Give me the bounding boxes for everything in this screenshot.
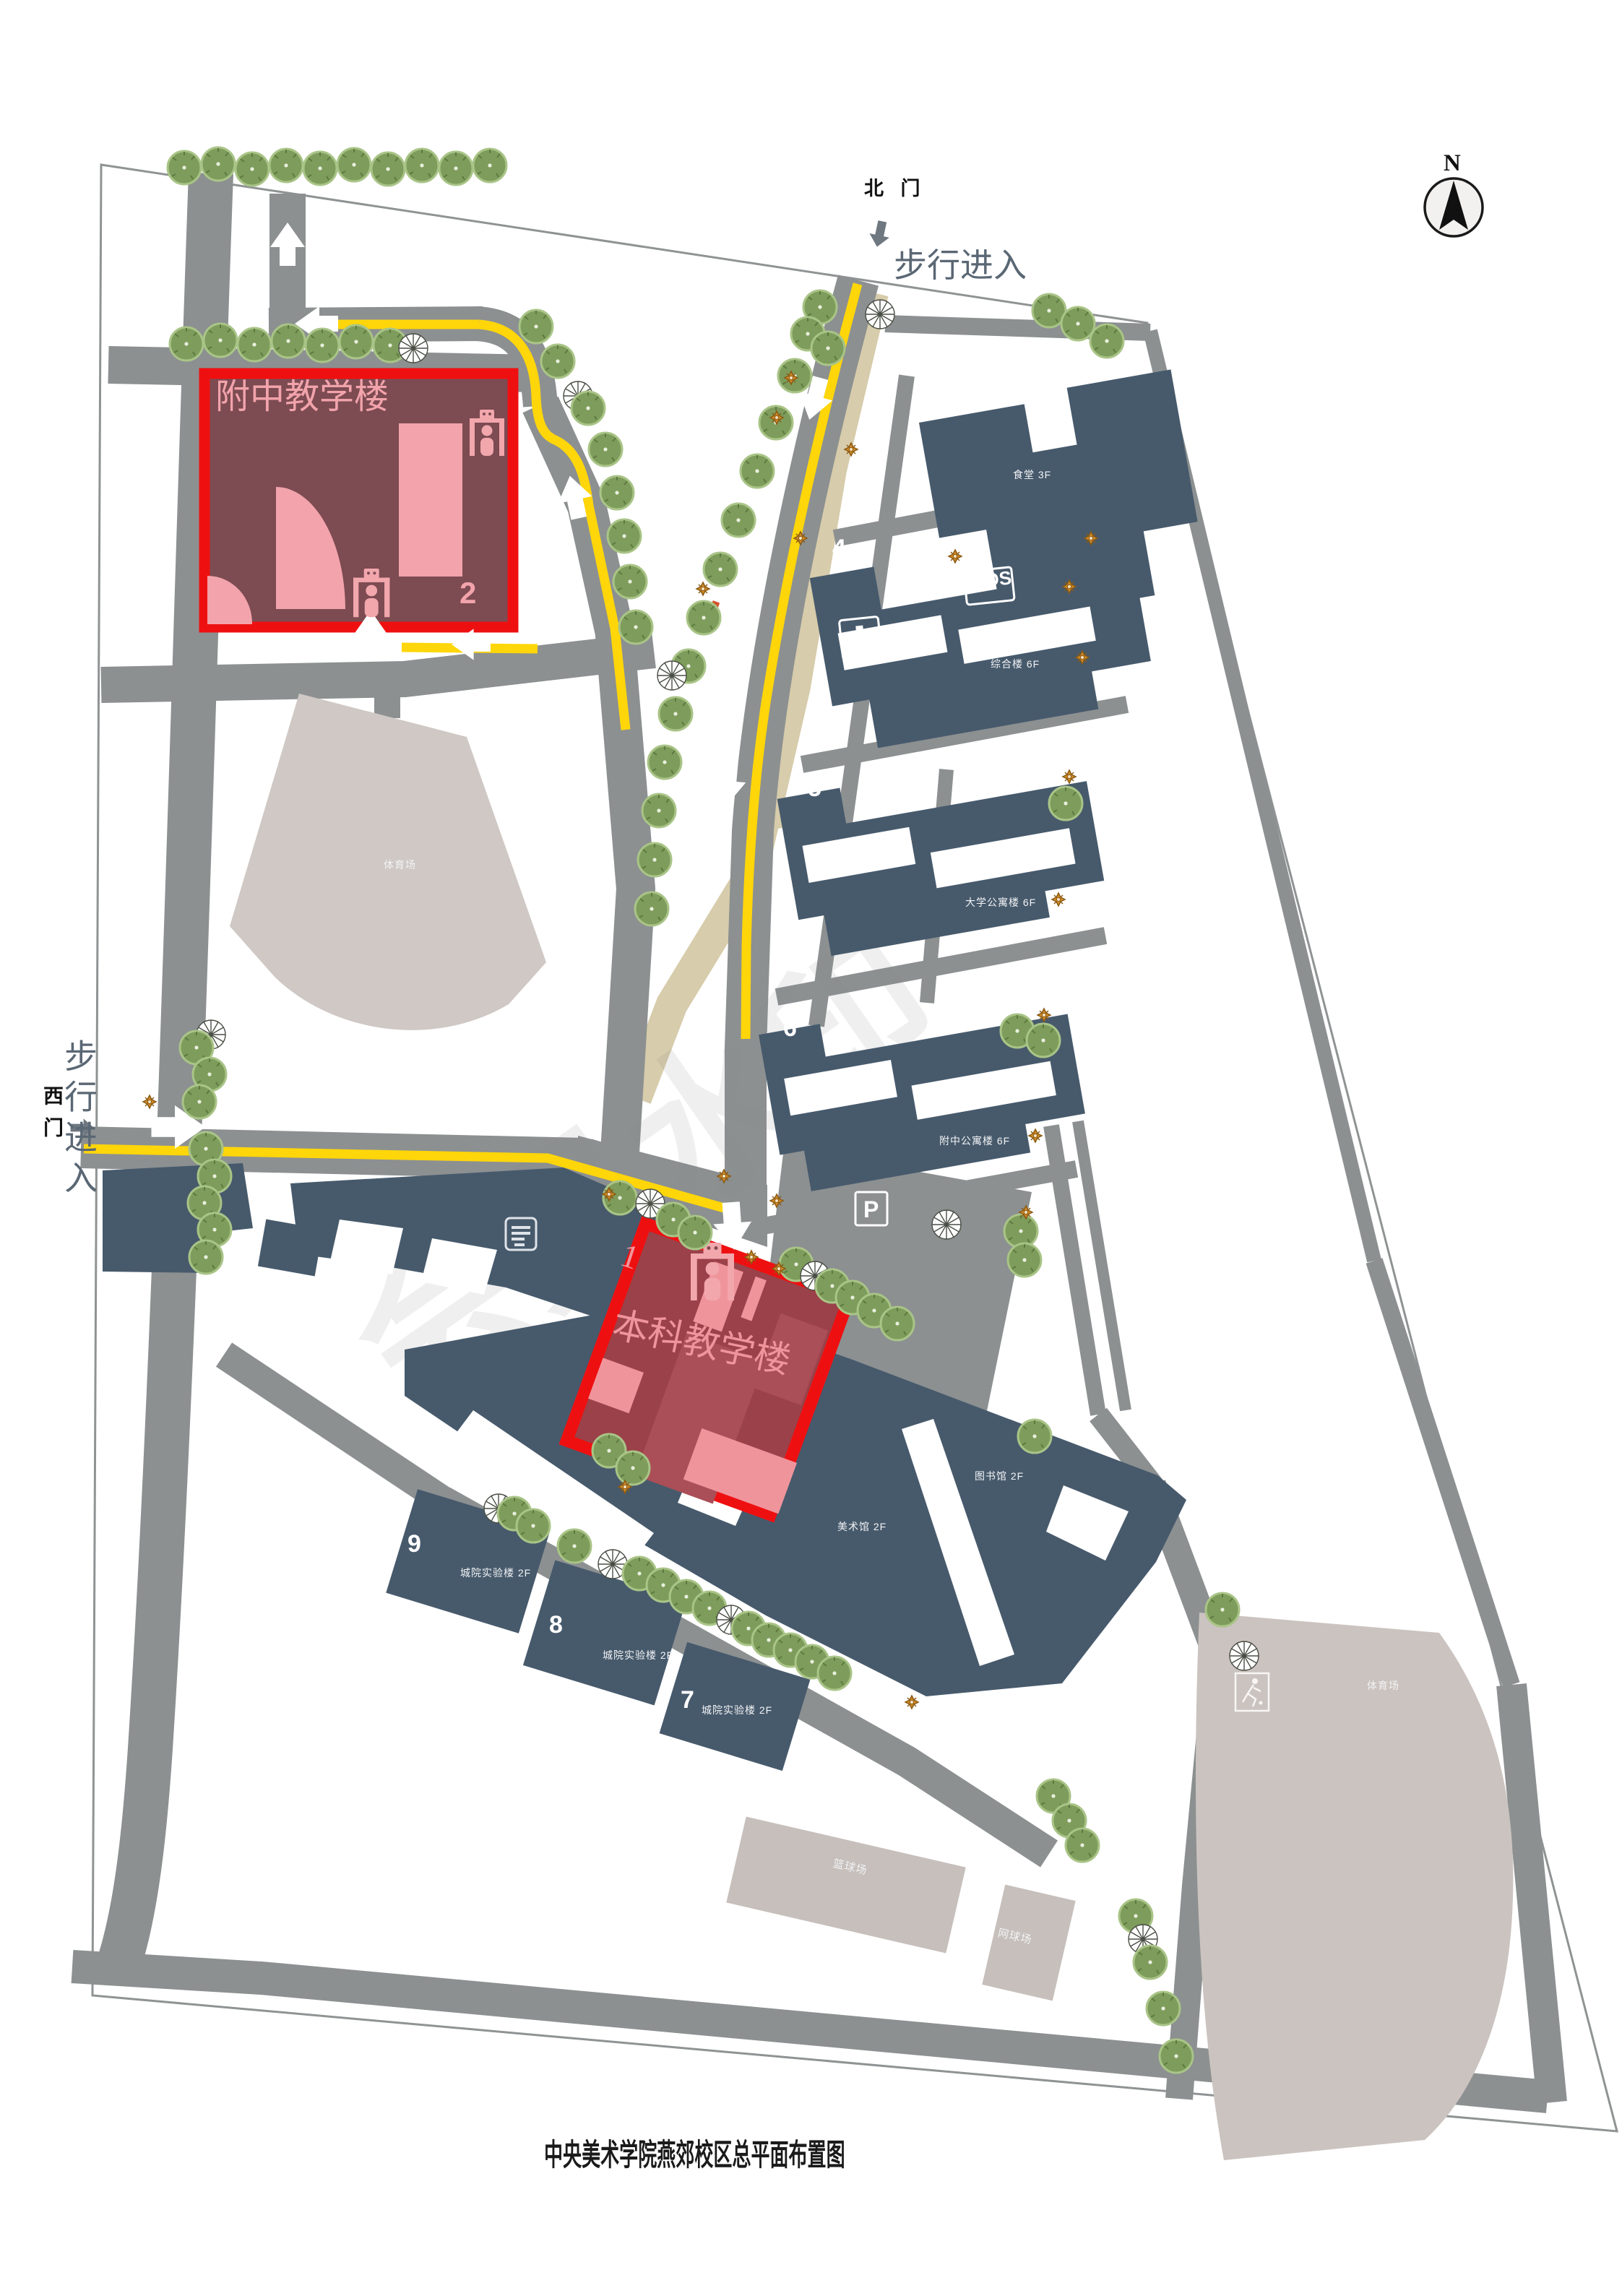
sos-badge-text: SOS — [971, 568, 1012, 591]
compass-label: N — [1444, 152, 1461, 176]
page-title: 中央美术学院燕郊校区总平面布置图 — [544, 2140, 845, 2170]
building-7-label: 城院实验楼 2F — [702, 1705, 772, 1715]
building-9-label: 城院实验楼 2F — [460, 1568, 531, 1578]
north-gate-arrow-icon — [867, 219, 892, 249]
west-gate-label: 西门 — [42, 1085, 62, 1149]
museum-label: 美术馆 2F — [837, 1522, 887, 1532]
building-6-label: 附中公寓楼 6F — [939, 1136, 1010, 1146]
building-4-number: 4 — [832, 536, 846, 561]
building-2-title: 附中教学楼 — [215, 380, 389, 415]
building-4-label: 综合楼 6F — [991, 659, 1040, 669]
building-3-label: 食堂 3F — [1013, 470, 1051, 480]
building-5-number: 5 — [808, 776, 821, 800]
stadium-nw-label: 体育场 — [384, 860, 416, 870]
campus-map: 会员水印 — [0, 0, 1622, 2296]
building-6-number: 6 — [783, 1016, 797, 1040]
building-8-number: 8 — [549, 1613, 563, 1637]
west-gate-note: 步行进入 — [62, 1039, 95, 1201]
library-label: 图书馆 2F — [975, 1471, 1024, 1481]
building-3-number: 3 — [933, 389, 947, 413]
building-5-label: 大学公寓楼 6F — [965, 897, 1036, 907]
building-8-label: 城院实验楼 2F — [603, 1650, 673, 1660]
building-2-number: 2 — [460, 578, 476, 608]
basketball-court — [726, 1816, 965, 1953]
campus-map-svg: 会员水印 — [0, 0, 1622, 2296]
stadium-se-label: 体育场 — [1367, 1680, 1399, 1691]
building-9-number: 9 — [407, 1532, 421, 1556]
parking-badge-text: P — [863, 1198, 879, 1221]
north-gate-note: 步行进入 — [894, 249, 1027, 282]
stadium-southeast — [1196, 1613, 1513, 2160]
north-compass-icon — [1425, 178, 1483, 236]
building-7-number: 7 — [681, 1688, 694, 1712]
north-gate-label: 北 门 — [864, 179, 926, 199]
